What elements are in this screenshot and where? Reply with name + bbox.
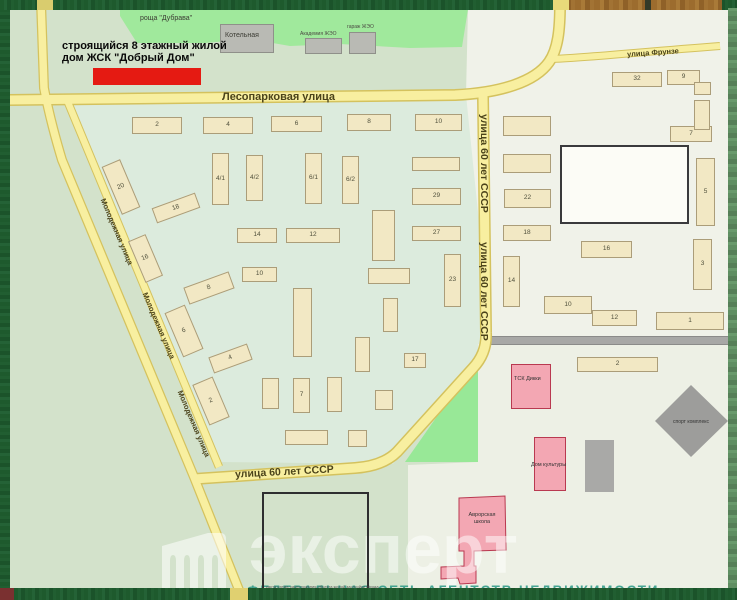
- svg-text:спорт комплекс: спорт комплекс: [673, 419, 709, 425]
